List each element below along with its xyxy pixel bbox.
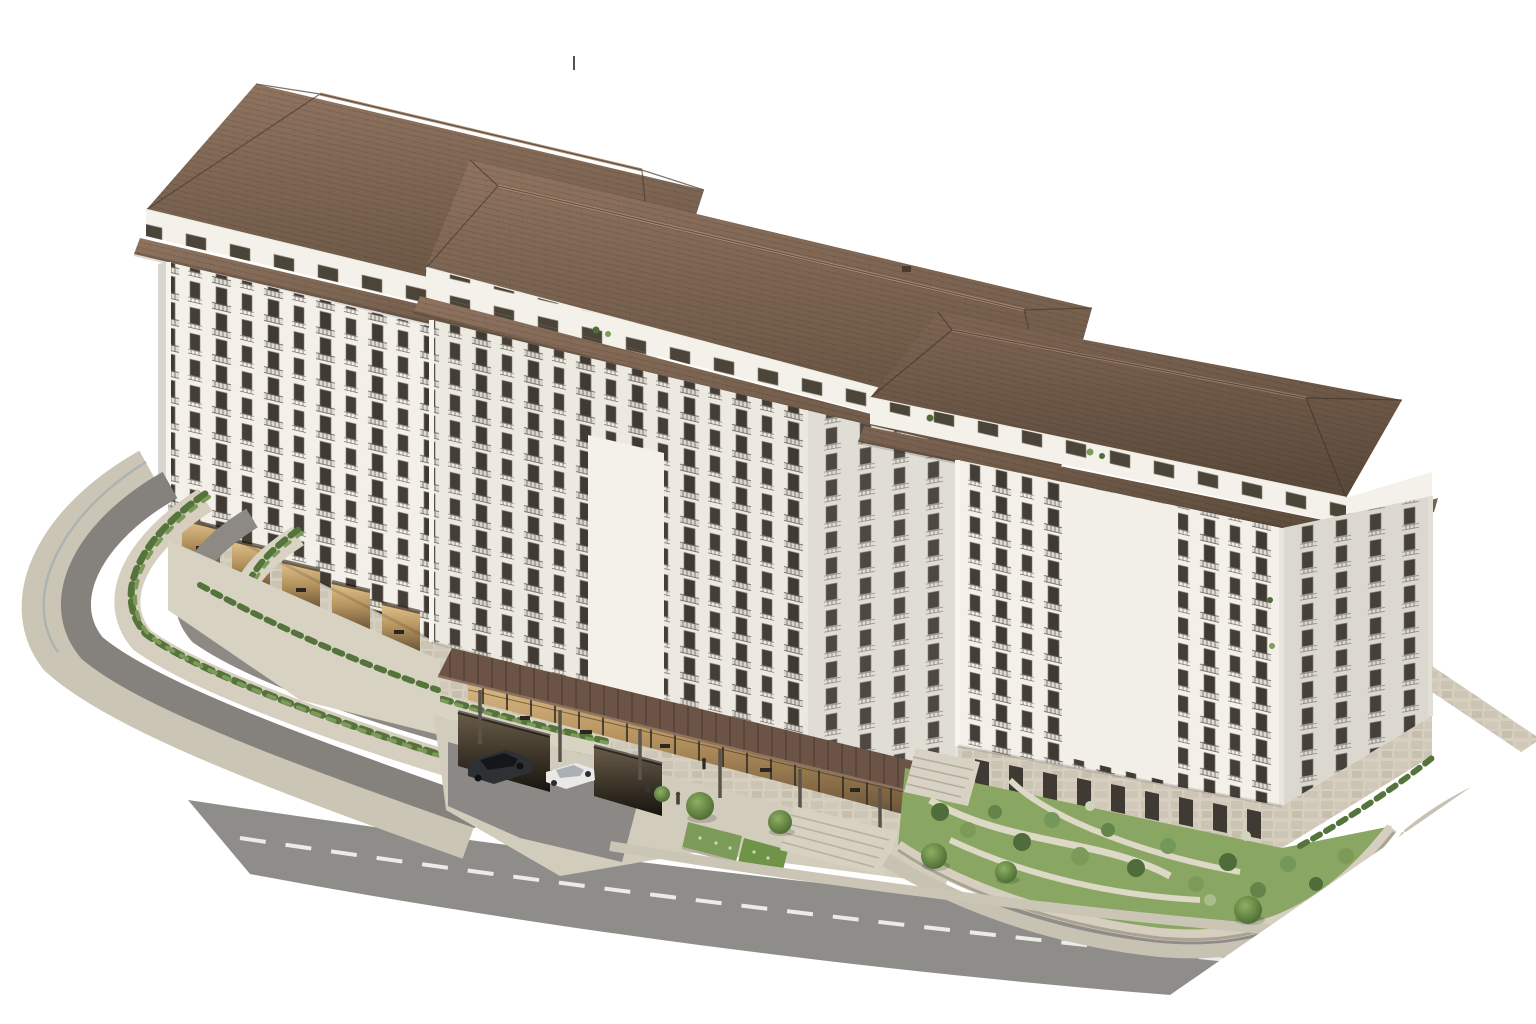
blank-wall-panel (588, 435, 664, 718)
architectural-rendering (0, 0, 1536, 1024)
corner-pilaster (166, 262, 171, 505)
blank-wall-panel-right (1062, 482, 1178, 784)
scene-canvas (0, 0, 1536, 1024)
roof-vent (902, 266, 911, 272)
